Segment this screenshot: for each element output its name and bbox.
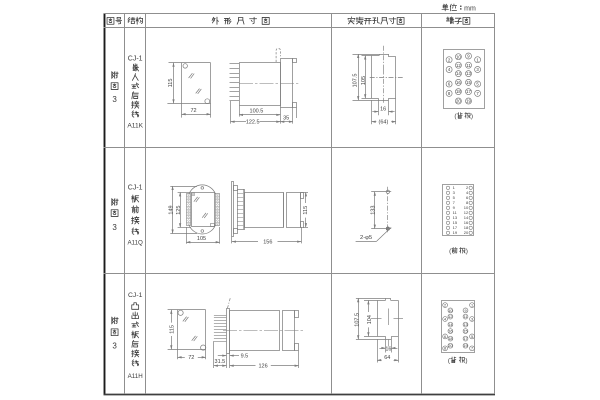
svg-text:3: 3 (471, 317, 473, 321)
svg-text:4: 4 (448, 67, 451, 72)
svg-text:mm: mm (464, 5, 476, 12)
svg-text:107.5: 107.5 (353, 74, 359, 88)
svg-text:3: 3 (112, 95, 117, 104)
svg-text:11: 11 (464, 315, 468, 319)
svg-text:15: 15 (466, 80, 471, 85)
svg-text:126: 126 (259, 364, 268, 370)
svg-text:2: 2 (444, 304, 446, 308)
svg-text:2: 2 (448, 57, 451, 62)
svg-text:133: 133 (371, 206, 377, 215)
svg-text:17: 17 (466, 89, 471, 94)
svg-text:100.5: 100.5 (250, 109, 264, 115)
svg-text:12: 12 (456, 63, 461, 68)
svg-text:115: 115 (303, 206, 309, 215)
svg-text:72: 72 (188, 355, 194, 361)
svg-text:64: 64 (384, 355, 390, 361)
svg-text:1: 1 (476, 57, 479, 62)
svg-text:3: 3 (112, 341, 117, 350)
svg-text:16: 16 (380, 106, 386, 112)
svg-text:8: 8 (444, 347, 446, 351)
svg-text:6: 6 (444, 335, 446, 339)
svg-text:): ) (465, 357, 467, 364)
svg-text:105: 105 (361, 76, 367, 85)
svg-text:CJ-1: CJ-1 (128, 55, 143, 62)
svg-text:20: 20 (448, 344, 452, 348)
svg-text:156: 156 (263, 240, 272, 246)
svg-text:(64): (64) (379, 120, 389, 126)
svg-text:11: 11 (466, 63, 471, 68)
svg-text:35: 35 (283, 116, 289, 122)
svg-text:12: 12 (448, 315, 452, 319)
svg-text:122.5: 122.5 (246, 120, 260, 126)
svg-text:4: 4 (444, 317, 446, 321)
svg-text:9: 9 (467, 54, 470, 59)
svg-text:115: 115 (168, 79, 174, 88)
svg-text:149: 149 (168, 205, 174, 214)
svg-text:CJ-1: CJ-1 (128, 185, 143, 192)
svg-text:17: 17 (463, 337, 467, 341)
svg-text:72: 72 (190, 108, 196, 114)
svg-text:18: 18 (448, 337, 452, 341)
svg-text:10: 10 (456, 54, 461, 59)
svg-text:6: 6 (448, 82, 451, 87)
svg-text:115: 115 (169, 325, 175, 334)
svg-text:3: 3 (476, 67, 479, 72)
svg-text:16: 16 (385, 346, 391, 352)
svg-text:14: 14 (456, 71, 461, 76)
svg-text:14: 14 (448, 323, 452, 327)
svg-text:1: 1 (471, 304, 473, 308)
svg-text:): ) (466, 248, 468, 255)
svg-text:31.5: 31.5 (215, 359, 226, 365)
svg-text:7: 7 (471, 347, 473, 351)
svg-text:φ5: φ5 (365, 235, 372, 241)
svg-text:13: 13 (466, 71, 471, 76)
svg-text:125: 125 (176, 206, 182, 215)
svg-text:107.5: 107.5 (354, 313, 360, 327)
svg-text:19: 19 (463, 344, 467, 348)
svg-text:16: 16 (456, 80, 461, 85)
svg-text:16: 16 (448, 330, 452, 334)
svg-text:A11H: A11H (128, 373, 143, 380)
svg-text:9: 9 (464, 309, 466, 313)
svg-text:10: 10 (448, 309, 452, 313)
svg-text:9.5: 9.5 (241, 354, 249, 360)
svg-text:13: 13 (463, 323, 467, 327)
svg-text:20: 20 (464, 230, 469, 235)
svg-text:5: 5 (476, 82, 479, 87)
svg-text:19: 19 (453, 230, 458, 235)
svg-text:18: 18 (456, 89, 461, 94)
svg-text:CJ-1: CJ-1 (128, 292, 143, 299)
svg-text:3: 3 (112, 223, 117, 232)
svg-text:A11K: A11K (127, 123, 143, 130)
svg-text:20: 20 (456, 99, 461, 104)
svg-text:105: 105 (197, 236, 206, 242)
svg-text:7: 7 (476, 91, 479, 96)
svg-text:15: 15 (463, 330, 467, 334)
svg-text:104: 104 (367, 315, 373, 324)
svg-text:19: 19 (466, 99, 471, 104)
svg-text:): ) (471, 113, 473, 120)
svg-text:8: 8 (448, 91, 451, 96)
svg-text:5: 5 (471, 335, 473, 339)
svg-text:A11Q: A11Q (128, 240, 144, 247)
